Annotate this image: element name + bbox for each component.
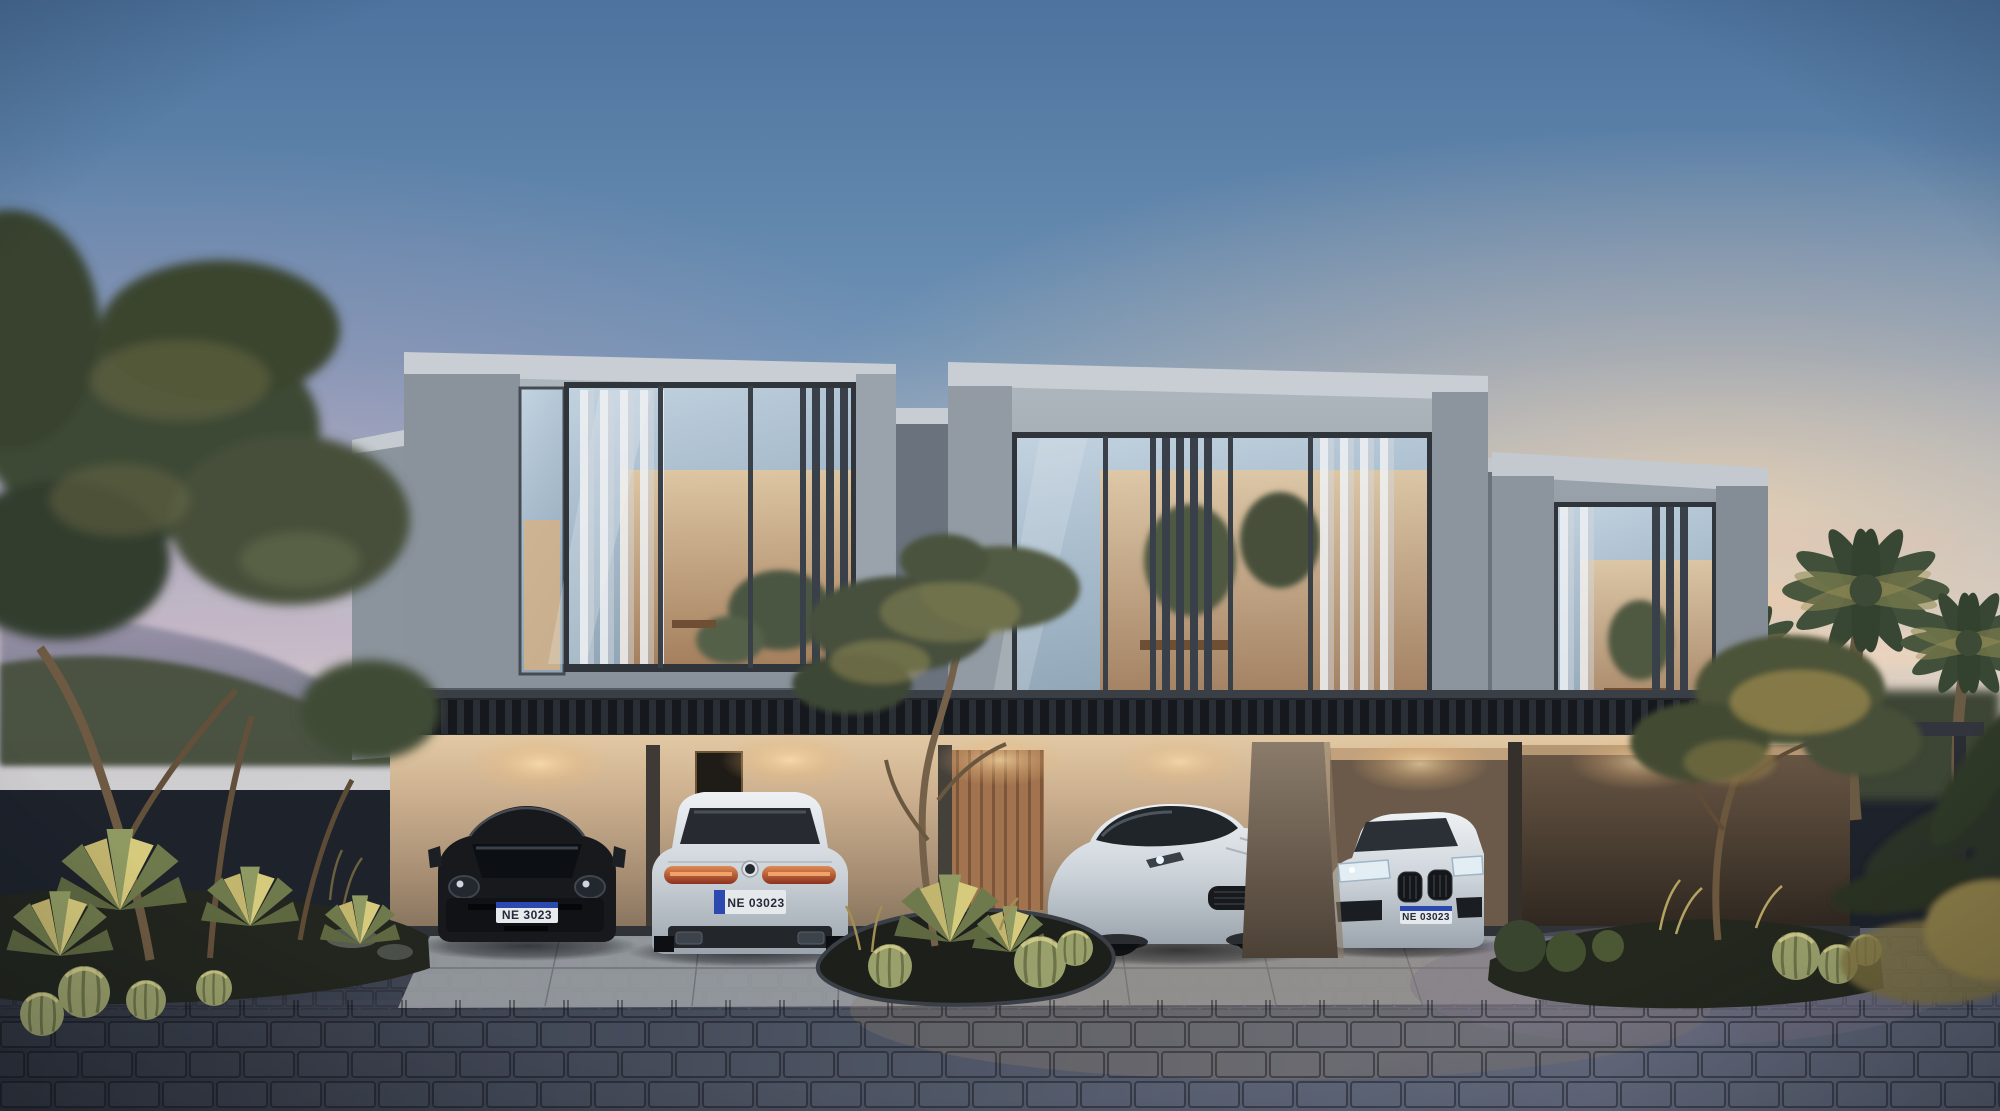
vignette-overlay xyxy=(0,0,2000,1111)
dusk-townhouse-render: NE 3023 NE 03023 xyxy=(0,0,2000,1111)
